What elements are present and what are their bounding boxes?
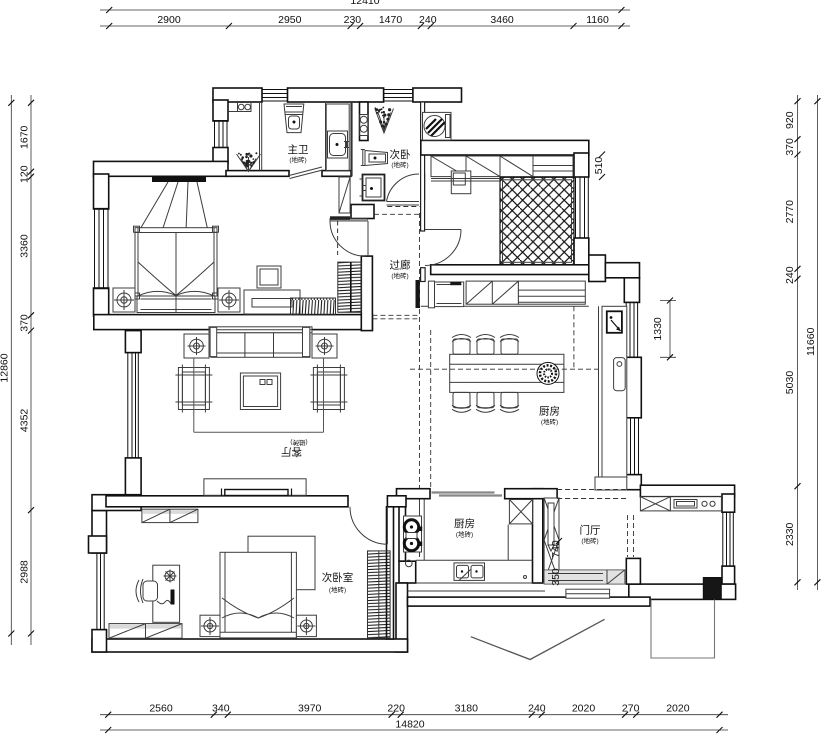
svg-text:350: 350 (550, 568, 562, 586)
svg-text:2950: 2950 (278, 14, 302, 26)
svg-text:客厅: 客厅 (281, 446, 302, 459)
svg-text:2020: 2020 (572, 703, 596, 715)
svg-text:厨房: 厨房 (454, 517, 475, 530)
svg-text:370: 370 (784, 138, 796, 156)
svg-text:2770: 2770 (784, 200, 796, 224)
svg-text:5030: 5030 (784, 371, 796, 395)
svg-text:主卫: 主卫 (288, 144, 309, 156)
svg-text:270: 270 (622, 703, 640, 715)
svg-text:厨房: 厨房 (539, 405, 560, 418)
svg-text:120: 120 (19, 165, 31, 183)
svg-text:1470: 1470 (379, 14, 403, 26)
svg-text:(地砖): (地砖) (456, 530, 473, 539)
svg-text:14820: 14820 (395, 719, 424, 731)
svg-text:次卧室: 次卧室 (322, 571, 354, 584)
svg-text:4352: 4352 (19, 409, 31, 433)
svg-text:740: 740 (550, 540, 562, 558)
svg-text:12860: 12860 (0, 353, 11, 382)
svg-text:(地砖): (地砖) (391, 160, 408, 169)
svg-text:240: 240 (528, 703, 546, 715)
svg-text:1670: 1670 (19, 125, 31, 149)
svg-text:2020: 2020 (666, 703, 690, 715)
svg-text:(地砖): (地砖) (289, 155, 306, 164)
svg-text:(地砖): (地砖) (391, 271, 408, 280)
svg-text:2560: 2560 (149, 703, 173, 715)
svg-text:2900: 2900 (157, 14, 181, 26)
svg-text:240: 240 (419, 14, 437, 26)
svg-text:920: 920 (784, 111, 796, 129)
svg-text:340: 340 (212, 703, 230, 715)
svg-text:370: 370 (19, 314, 31, 332)
svg-text:过廊: 过廊 (390, 259, 411, 272)
svg-text:(磁砖): (磁砖) (290, 439, 307, 448)
svg-text:220: 220 (387, 703, 405, 715)
svg-text:3970: 3970 (298, 703, 322, 715)
svg-text:510: 510 (593, 157, 605, 175)
svg-text:2988: 2988 (19, 560, 31, 584)
svg-text:3180: 3180 (455, 703, 479, 715)
svg-text:230: 230 (344, 14, 362, 26)
svg-text:(地砖): (地砖) (581, 536, 598, 545)
svg-text:(地砖): (地砖) (541, 417, 558, 426)
svg-text:11660: 11660 (805, 327, 817, 356)
svg-text:3360: 3360 (19, 234, 31, 258)
svg-text:3460: 3460 (490, 14, 514, 26)
svg-text:2330: 2330 (784, 522, 796, 546)
svg-text:1330: 1330 (652, 317, 664, 341)
svg-text:次卧: 次卧 (390, 148, 411, 161)
svg-text:240: 240 (784, 266, 796, 284)
svg-text:(地砖): (地砖) (329, 585, 346, 594)
svg-text:1160: 1160 (586, 14, 609, 26)
svg-text:12410: 12410 (350, 0, 379, 7)
svg-text:门厅: 门厅 (580, 524, 601, 537)
